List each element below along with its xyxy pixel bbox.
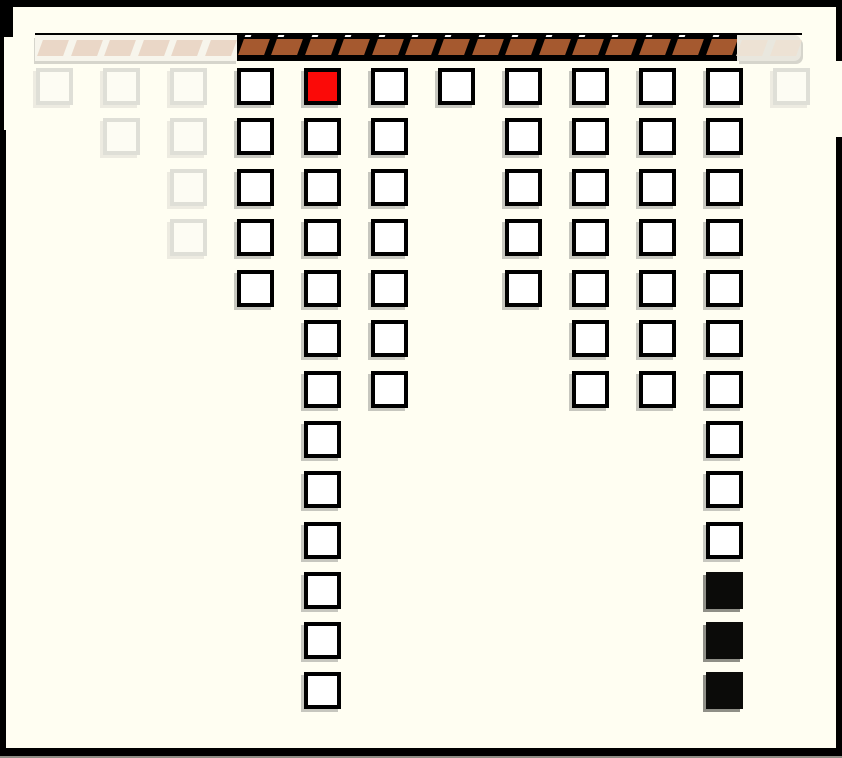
block-col5-row6[interactable] bbox=[304, 320, 341, 357]
block-col5-row10[interactable] bbox=[304, 522, 341, 559]
block-col11-row9[interactable] bbox=[706, 471, 743, 508]
block-col11-row4[interactable] bbox=[706, 219, 743, 256]
block-col9-row4[interactable] bbox=[572, 219, 609, 256]
block-col5-row1[interactable] bbox=[304, 68, 341, 105]
block-col5-row4[interactable] bbox=[304, 219, 341, 256]
block-col9-row1[interactable] bbox=[572, 68, 609, 105]
block-col11-row3[interactable] bbox=[706, 169, 743, 206]
block-col11-row2[interactable] bbox=[706, 118, 743, 155]
block-col3-row4-ghost bbox=[170, 219, 207, 256]
block-col6-row1[interactable] bbox=[371, 68, 408, 105]
block-col1-row1-ghost bbox=[36, 68, 73, 105]
block-col10-row1[interactable] bbox=[639, 68, 676, 105]
block-col10-row6[interactable] bbox=[639, 320, 676, 357]
block-col5-row2[interactable] bbox=[304, 118, 341, 155]
block-col2-row1-ghost bbox=[103, 68, 140, 105]
block-col9-row7[interactable] bbox=[572, 371, 609, 408]
block-col4-row4[interactable] bbox=[237, 219, 274, 256]
block-col11-row13[interactable] bbox=[706, 672, 743, 709]
block-col5-row5[interactable] bbox=[304, 270, 341, 307]
block-col10-row2[interactable] bbox=[639, 118, 676, 155]
block-col9-row5[interactable] bbox=[572, 270, 609, 307]
block-col11-row11[interactable] bbox=[706, 572, 743, 609]
board bbox=[0, 0, 842, 758]
block-col4-row5[interactable] bbox=[237, 270, 274, 307]
block-col8-row2[interactable] bbox=[505, 118, 542, 155]
block-col3-row1-ghost bbox=[170, 68, 207, 105]
block-col6-row7[interactable] bbox=[371, 371, 408, 408]
block-col3-row2-ghost bbox=[170, 118, 207, 155]
block-col4-row3[interactable] bbox=[237, 169, 274, 206]
block-col11-row10[interactable] bbox=[706, 522, 743, 559]
block-col6-row6[interactable] bbox=[371, 320, 408, 357]
block-col6-row4[interactable] bbox=[371, 219, 408, 256]
block-col11-row7[interactable] bbox=[706, 371, 743, 408]
block-col11-row1[interactable] bbox=[706, 68, 743, 105]
block-col4-row2[interactable] bbox=[237, 118, 274, 155]
block-col5-row7[interactable] bbox=[304, 371, 341, 408]
block-col10-row3[interactable] bbox=[639, 169, 676, 206]
block-col6-row5[interactable] bbox=[371, 270, 408, 307]
block-col6-row3[interactable] bbox=[371, 169, 408, 206]
block-col5-row12[interactable] bbox=[304, 622, 341, 659]
block-col8-row1[interactable] bbox=[505, 68, 542, 105]
block-col7-row1[interactable] bbox=[438, 68, 475, 105]
block-col9-row2[interactable] bbox=[572, 118, 609, 155]
block-col9-row3[interactable] bbox=[572, 169, 609, 206]
block-col10-row5[interactable] bbox=[639, 270, 676, 307]
block-col11-row6[interactable] bbox=[706, 320, 743, 357]
block-col9-row6[interactable] bbox=[572, 320, 609, 357]
block-col6-row2[interactable] bbox=[371, 118, 408, 155]
block-col5-row8[interactable] bbox=[304, 421, 341, 458]
block-col11-row8[interactable] bbox=[706, 421, 743, 458]
block-col8-row3[interactable] bbox=[505, 169, 542, 206]
block-col8-row5[interactable] bbox=[505, 270, 542, 307]
block-col11-row5[interactable] bbox=[706, 270, 743, 307]
block-col11-row12[interactable] bbox=[706, 622, 743, 659]
block-col12-row1-ghost bbox=[773, 68, 810, 105]
block-col5-row3[interactable] bbox=[304, 169, 341, 206]
block-col8-row4[interactable] bbox=[505, 219, 542, 256]
block-col10-row7[interactable] bbox=[639, 371, 676, 408]
block-col10-row4[interactable] bbox=[639, 219, 676, 256]
block-col5-row13[interactable] bbox=[304, 672, 341, 709]
block-col5-row9[interactable] bbox=[304, 471, 341, 508]
game-window bbox=[0, 0, 842, 758]
block-col2-row2-ghost bbox=[103, 118, 140, 155]
block-col3-row3-ghost bbox=[170, 169, 207, 206]
block-col5-row11[interactable] bbox=[304, 572, 341, 609]
block-col4-row1[interactable] bbox=[237, 68, 274, 105]
